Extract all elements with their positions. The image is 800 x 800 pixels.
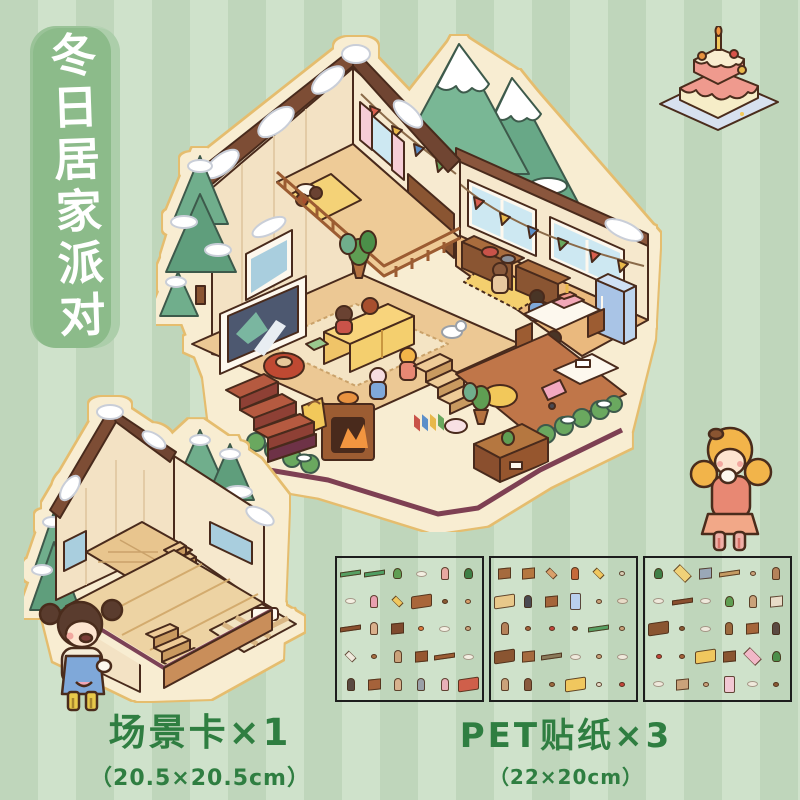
sticker-item xyxy=(695,672,716,697)
sticker-item xyxy=(648,616,669,641)
sticker-item xyxy=(494,616,515,641)
sticker-item xyxy=(695,616,716,641)
sticker-item xyxy=(458,672,479,697)
banner-title-text: 冬日居家派对 xyxy=(47,30,104,343)
sticker-item xyxy=(612,561,633,586)
sticker-item xyxy=(695,561,716,586)
pet-sticker-sheet-3 xyxy=(643,556,792,702)
sticker-item xyxy=(340,616,361,641)
sticker-item xyxy=(742,644,763,669)
sticker-item xyxy=(742,561,763,586)
sticker-item xyxy=(612,589,633,614)
sticker-item xyxy=(588,616,609,641)
sticker-item xyxy=(434,561,455,586)
sticker-item xyxy=(340,644,361,669)
girl-laughing-character xyxy=(20,586,138,718)
sticker-item xyxy=(411,672,432,697)
sticker-item xyxy=(434,589,455,614)
sticker-item xyxy=(387,616,408,641)
sticker-item xyxy=(565,589,586,614)
sticker-item xyxy=(411,644,432,669)
sticker-item xyxy=(672,589,693,614)
sticker-item xyxy=(541,644,562,669)
sticker-item xyxy=(340,672,361,697)
sticker-item xyxy=(518,644,539,669)
sticker-item xyxy=(719,561,740,586)
sticker-item xyxy=(364,644,385,669)
sticker-item xyxy=(364,561,385,586)
sticker-item xyxy=(695,589,716,614)
sticker-item xyxy=(411,616,432,641)
sticker-item xyxy=(494,672,515,697)
sticker-item xyxy=(411,589,432,614)
sticker-item xyxy=(411,561,432,586)
sticker-item xyxy=(458,589,479,614)
sticker-item xyxy=(612,644,633,669)
sticker-item xyxy=(541,561,562,586)
pet-sticker-sheet-1 xyxy=(335,556,484,702)
sticker-item xyxy=(387,589,408,614)
sticker-item xyxy=(340,589,361,614)
sticker-item xyxy=(672,561,693,586)
sticker-item xyxy=(648,672,669,697)
sticker-item xyxy=(766,616,787,641)
girl-drinking-character xyxy=(676,418,784,558)
title-banner: 冬日居家派对 xyxy=(30,26,120,348)
sticker-item xyxy=(340,561,361,586)
sticker-item xyxy=(387,644,408,669)
scene-card-size: （20.5×20.5cm） xyxy=(66,760,334,792)
sticker-item xyxy=(672,672,693,697)
sticker-item xyxy=(364,589,385,614)
sticker-item xyxy=(565,616,586,641)
sticker-item xyxy=(434,616,455,641)
sticker-item xyxy=(612,616,633,641)
pet-sticker-size: （22×20cm） xyxy=(428,761,704,790)
sticker-item xyxy=(588,561,609,586)
sticker-item xyxy=(648,589,669,614)
sticker-item xyxy=(364,616,385,641)
scene-card-label: 场景卡×1 xyxy=(66,702,334,756)
sticker-item xyxy=(518,561,539,586)
sticker-item xyxy=(387,672,408,697)
sticker-item xyxy=(518,616,539,641)
sticker-item xyxy=(565,672,586,697)
sticker-item xyxy=(565,561,586,586)
sticker-item xyxy=(494,644,515,669)
sticker-item xyxy=(588,644,609,669)
sticker-item xyxy=(458,561,479,586)
scene-card-label-block: 场景卡×1 （20.5×20.5cm） xyxy=(66,702,334,792)
sticker-item xyxy=(387,561,408,586)
sticker-item xyxy=(672,644,693,669)
sticker-item xyxy=(565,644,586,669)
sticker-item xyxy=(719,644,740,669)
sticker-item xyxy=(766,561,787,586)
pet-sticker-label-block: PET贴纸×3 （22×20cm） xyxy=(428,708,704,790)
sticker-item xyxy=(719,589,740,614)
product-image: 冬日居家派对 xyxy=(0,0,800,800)
sticker-item xyxy=(742,616,763,641)
sticker-item xyxy=(766,644,787,669)
sticker-item xyxy=(494,589,515,614)
sticker-item xyxy=(541,616,562,641)
sticker-item xyxy=(541,589,562,614)
birthday-cake-icon xyxy=(650,26,790,136)
sticker-item xyxy=(541,672,562,697)
sticker-item xyxy=(612,672,633,697)
sticker-item xyxy=(494,561,515,586)
sticker-item xyxy=(766,672,787,697)
sticker-item xyxy=(588,589,609,614)
sticker-item xyxy=(458,644,479,669)
sticker-item xyxy=(364,672,385,697)
pet-sticker-label: PET贴纸×3 xyxy=(428,708,704,757)
sticker-item xyxy=(458,616,479,641)
sticker-item xyxy=(672,616,693,641)
sticker-item xyxy=(588,672,609,697)
sticker-item xyxy=(434,644,455,669)
sticker-item xyxy=(648,561,669,586)
sticker-item xyxy=(518,672,539,697)
sticker-item xyxy=(766,589,787,614)
pet-sticker-sheet-2 xyxy=(489,556,638,702)
sticker-item xyxy=(648,644,669,669)
sticker-item xyxy=(695,644,716,669)
sticker-item xyxy=(742,672,763,697)
sticker-item xyxy=(742,589,763,614)
sticker-item xyxy=(518,589,539,614)
sticker-item xyxy=(719,616,740,641)
sticker-item xyxy=(719,672,740,697)
sticker-item xyxy=(434,672,455,697)
